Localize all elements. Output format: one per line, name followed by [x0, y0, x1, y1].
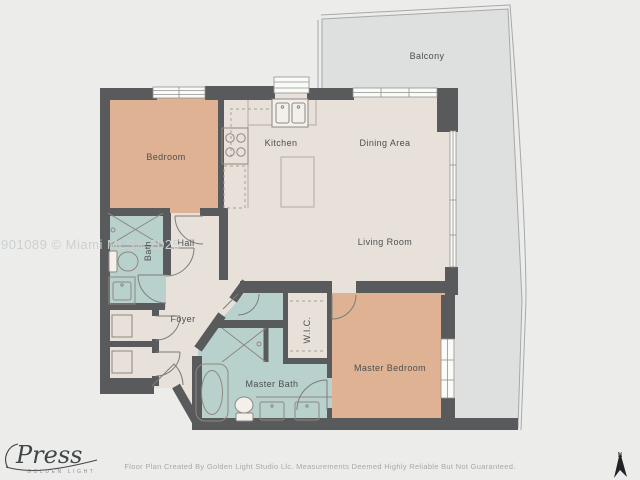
wall-segment — [103, 378, 159, 386]
room-label-living-room: Living Room — [358, 237, 412, 247]
logo-subtitle: GOLDEN LIGHT — [27, 469, 95, 475]
wall-segment — [152, 339, 159, 353]
wall-segment — [441, 398, 455, 420]
wall-segment — [218, 96, 224, 210]
wall-segment — [283, 293, 288, 363]
room-label-foyer: Foyer — [170, 314, 195, 324]
room-label-bedroom: Bedroom — [146, 152, 185, 162]
wall-segment — [219, 208, 228, 280]
wall-segment — [216, 320, 283, 328]
wall-segment — [152, 303, 159, 316]
floor-plan-image: Balcony Bedroom Kitchen Dining Area Livi… — [0, 0, 640, 480]
room-label-master-bath: Master Bath — [246, 379, 299, 389]
wall-segment — [356, 281, 448, 293]
room-label-master-bedroom: Master Bedroom — [354, 363, 426, 373]
toilet-icon — [235, 397, 253, 421]
mls-watermark: 901089 © Miami MLS® 2025 — [1, 237, 180, 252]
room-label-kitchen: Kitchen — [265, 138, 298, 148]
wall-segment — [437, 88, 458, 132]
logo-script: Press — [15, 441, 82, 469]
room-label-balcony: Balcony — [410, 51, 445, 61]
wall-segment — [192, 356, 202, 422]
kitchen-window — [274, 77, 309, 93]
wall-segment — [327, 408, 332, 420]
floor-plan-svg: Balcony Bedroom Kitchen Dining Area Livi… — [0, 0, 640, 480]
footer-disclaimer: Floor Plan Created By Golden Light Studi… — [124, 462, 515, 471]
room-label-dining-area: Dining Area — [360, 138, 411, 148]
master-bedroom-window — [441, 339, 454, 398]
wall-segment — [307, 88, 354, 100]
bedroom-window — [153, 87, 205, 98]
wall-segment — [103, 341, 159, 347]
wall-segment — [240, 281, 332, 293]
wall-segment — [441, 295, 455, 339]
wall-segment — [283, 358, 332, 364]
room-label-wic: W.I.C. — [302, 317, 312, 344]
wall-segment — [327, 293, 332, 378]
balcony-door-window — [353, 88, 437, 97]
wall-segment — [205, 86, 275, 100]
master-bedroom-floor — [332, 293, 454, 424]
living-room-glass-wall — [450, 131, 456, 267]
kitchen-sink-icon — [272, 99, 308, 127]
